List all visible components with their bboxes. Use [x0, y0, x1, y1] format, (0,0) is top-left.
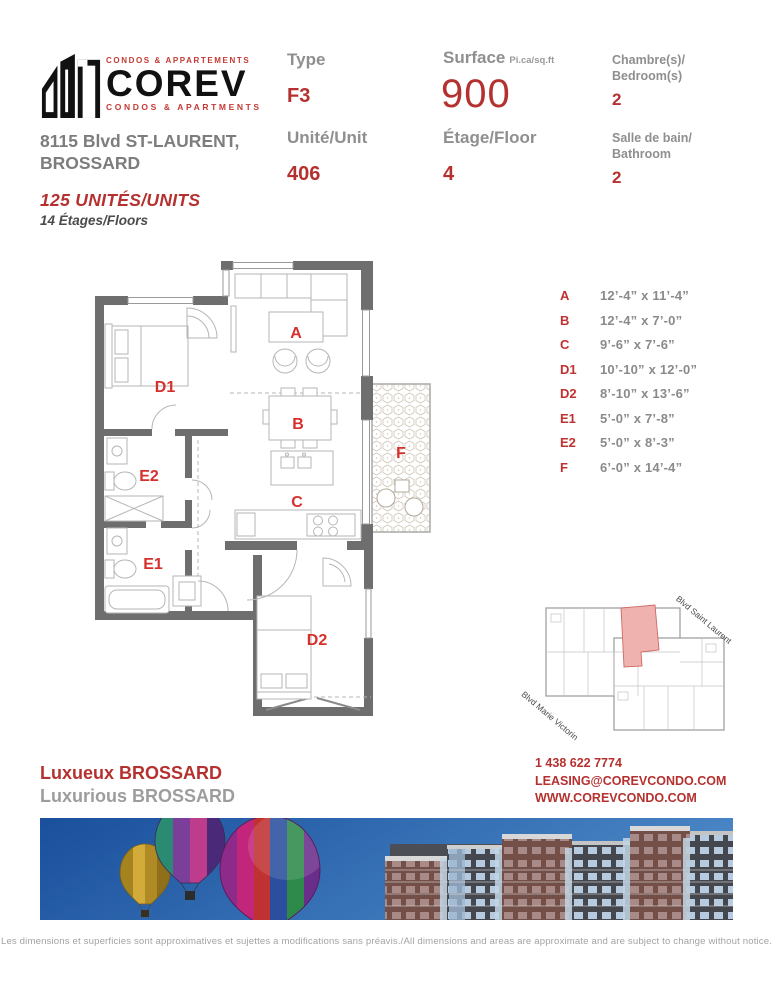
dimension-row: C9’-6” x 7’-6” — [560, 337, 697, 362]
logo-text: CONDOS & APPARTEMENTS COREV CONDOS & APA… — [106, 50, 262, 112]
address-line1: 8115 Blvd ST-LAURENT, — [40, 130, 239, 152]
contact-email-link[interactable]: LEASING@COREVCONDO.COM — [535, 773, 726, 791]
unit-label: Unité/Unit — [287, 128, 367, 148]
unit-value: 406 — [287, 163, 320, 186]
bathrooms-label: Salle de bain/ Bathroom — [612, 130, 692, 163]
bedrooms-value: 2 — [612, 90, 621, 110]
building-key-plan: Blvd Saint Laurent Blvd Marie Victorin — [518, 578, 753, 743]
type-label: Type — [287, 50, 325, 70]
room-label-e1: E1 — [143, 556, 163, 573]
room-dimensions-list: A12’-4” x 11’-4” B12’-4” x 7’-0” C9’-6” … — [560, 288, 697, 484]
floors-count: 14 Étages/Floors — [40, 213, 148, 228]
contact-phone: 1 438 622 7774 — [535, 755, 726, 773]
logo-tagline-bottom: CONDOS & APARTMENTS — [106, 102, 262, 112]
surface-value: 900 — [441, 72, 511, 117]
dimension-row: E15’-0” x 7’-8” — [560, 411, 697, 436]
surface-label-row: SurfacePi.ca/sq.ft — [443, 48, 554, 68]
bedrooms-label: Chambre(s)/ Bedroom(s) — [612, 52, 685, 85]
floor-value: 4 — [443, 163, 454, 186]
address-line2: BROSSARD — [40, 152, 239, 174]
disclaimer: Les dimensions et superficies sont appro… — [0, 936, 773, 947]
headline-french: Luxueux BROSSARD — [40, 763, 222, 784]
building-logo-icon — [40, 50, 102, 122]
contact-block: 1 438 622 7774 LEASING@COREVCONDO.COM WW… — [535, 755, 726, 808]
dimension-row: E25’-0” x 8’-3” — [560, 435, 697, 460]
room-label-c: C — [291, 494, 303, 511]
headline-english: Luxurious BROSSARD — [40, 786, 235, 807]
bathrooms-value: 2 — [612, 168, 621, 188]
room-label-d2: D2 — [307, 632, 328, 649]
surface-label: Surface — [443, 48, 505, 67]
room-label-e2: E2 — [139, 468, 159, 485]
room-label-d1: D1 — [155, 379, 176, 396]
hero-photo — [40, 818, 733, 920]
contact-website-link[interactable]: WWW.COREVCONDO.COM — [535, 790, 726, 808]
type-value: F3 — [287, 85, 310, 108]
floor-plan: A B C D1 D2 E1 E2 F — [85, 248, 480, 733]
dimension-row: D110’-10” x 12’-0” — [560, 362, 697, 387]
dimension-row: D28’-10” x 13’-6” — [560, 386, 697, 411]
logo-name: COREV — [106, 66, 262, 101]
room-label-b: B — [292, 416, 304, 433]
floor-label: Étage/Floor — [443, 128, 537, 148]
dimension-row: F6’-0” x 14’-4” — [560, 460, 697, 485]
surface-unit-suffix: Pi.ca/sq.ft — [509, 55, 554, 66]
dimension-row: B12’-4” x 7’-0” — [560, 313, 697, 338]
room-label-a: A — [290, 325, 302, 342]
brochure-page: CONDOS & APPARTEMENTS COREV CONDOS & APA… — [0, 0, 773, 1000]
room-label-f: F — [396, 445, 406, 462]
units-count: 125 UNITÉS/UNITS — [40, 190, 200, 211]
street-label-bottom: Blvd Marie Victorin — [520, 689, 581, 742]
dimension-row: A12’-4” x 11’-4” — [560, 288, 697, 313]
logo: CONDOS & APPARTEMENTS COREV CONDOS & APA… — [40, 50, 262, 122]
project-address: 8115 Blvd ST-LAURENT, BROSSARD — [40, 130, 239, 175]
